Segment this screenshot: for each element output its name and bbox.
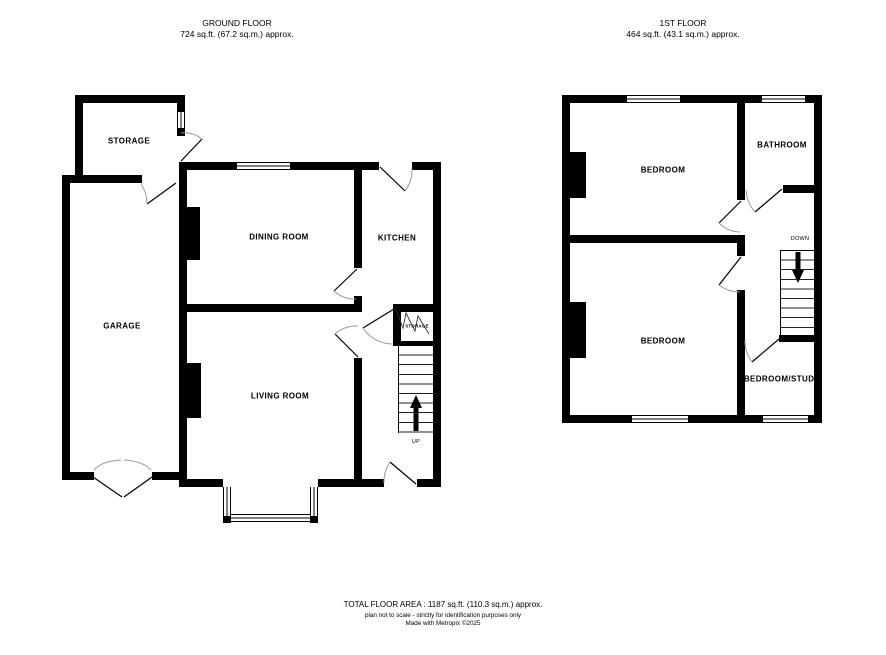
room-label-bedroom-study: BEDROOM/STUDY bbox=[744, 375, 820, 384]
ff-bedroom-front-door-leaf bbox=[719, 201, 741, 223]
footer: TOTAL FLOOR AREA : 1187 sq.ft. (110.3 sq… bbox=[344, 600, 543, 628]
gf-garage-door-arc-left bbox=[94, 460, 121, 470]
gf-garage-storage-door-arc bbox=[141, 184, 147, 204]
gf-front-door-leaf bbox=[390, 462, 416, 484]
gf-dining-door-arc bbox=[334, 291, 356, 299]
up-arrow-icon bbox=[410, 395, 422, 431]
room-label-storage: STORAGE bbox=[108, 137, 150, 146]
room-label-living-room: LIVING ROOM bbox=[251, 392, 309, 401]
gf-garage-door-leaf-right bbox=[124, 477, 152, 497]
ff-study-door-arc bbox=[745, 341, 752, 362]
gf-dining-door-leaf bbox=[334, 269, 357, 291]
gf-living-door-arc bbox=[335, 326, 358, 334]
gf-front-door-arc bbox=[384, 462, 390, 483]
gf-garage-door-leaf-left bbox=[93, 477, 122, 497]
down-arrow-icon bbox=[792, 252, 804, 283]
gf-kitchen-hall-door-leaf bbox=[363, 309, 394, 328]
room-label-kitchen: KITCHEN bbox=[378, 234, 416, 243]
credit: Made with Metropix ©2025 bbox=[344, 620, 543, 628]
ff-bathroom-door-arc bbox=[746, 190, 755, 212]
ff-bedroom-front-door-arc bbox=[719, 223, 740, 232]
room-label-understairs-storage: STORAGE bbox=[405, 324, 429, 329]
gf-storage-door-arc bbox=[181, 133, 202, 139]
gf-garage-door-arc-right bbox=[124, 460, 151, 470]
stairs-up-label: UP bbox=[412, 439, 420, 445]
gf-living-door-leaf bbox=[335, 334, 358, 357]
ff-bedroom-back-door-leaf bbox=[719, 257, 741, 285]
room-label-garage: GARAGE bbox=[103, 322, 141, 331]
total-floor-area: TOTAL FLOOR AREA : 1187 sq.ft. (110.3 sq… bbox=[344, 600, 543, 609]
floorplan-canvas: GROUND FLOOR 724 sq.ft. (67.2 sq.m.) app… bbox=[0, 0, 886, 655]
disclaimer: plan not to scale - strictly for identif… bbox=[344, 612, 543, 620]
gf-kitchen-back-door-arc bbox=[405, 169, 412, 191]
ff-study-door-leaf bbox=[752, 339, 779, 362]
room-label-dining-room: DINING ROOM bbox=[249, 233, 309, 242]
ff-bedroom-back-door-arc bbox=[719, 285, 740, 292]
gf-garage-storage-door-leaf bbox=[147, 183, 176, 204]
room-label-bedroom-back: BEDROOM bbox=[641, 337, 686, 346]
room-label-bedroom-front: BEDROOM bbox=[641, 166, 686, 175]
stairs-down-label: DOWN bbox=[791, 236, 810, 242]
gf-storage-door-leaf bbox=[181, 139, 202, 161]
ff-bathroom-door-leaf bbox=[755, 189, 782, 212]
gf-kitchen-hall-door-arc bbox=[363, 328, 393, 344]
gf-understairs-zigzag bbox=[396, 310, 429, 334]
room-label-bathroom: BATHROOM bbox=[757, 141, 807, 150]
gf-kitchen-back-door-leaf bbox=[380, 167, 405, 191]
